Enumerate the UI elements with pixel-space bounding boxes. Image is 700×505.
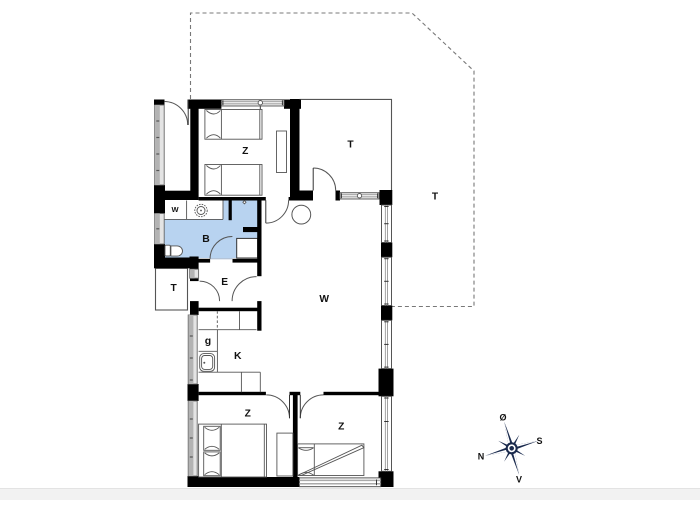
svg-text:B: B: [202, 234, 210, 245]
svg-text:W: W: [171, 205, 179, 214]
svg-text:Z: Z: [338, 421, 344, 432]
svg-text:N: N: [478, 451, 485, 461]
svg-text:T: T: [170, 283, 177, 294]
svg-text:K: K: [234, 351, 242, 362]
svg-text:T: T: [347, 139, 354, 150]
svg-text:V: V: [516, 475, 522, 485]
svg-text:W: W: [319, 294, 329, 305]
svg-text:S: S: [536, 436, 542, 446]
svg-text:Z: Z: [242, 146, 248, 157]
svg-text:E: E: [221, 277, 228, 288]
svg-text:T: T: [432, 192, 439, 203]
svg-text:Z: Z: [245, 408, 251, 419]
svg-text:Ø: Ø: [499, 413, 506, 423]
svg-text:g: g: [205, 335, 211, 347]
